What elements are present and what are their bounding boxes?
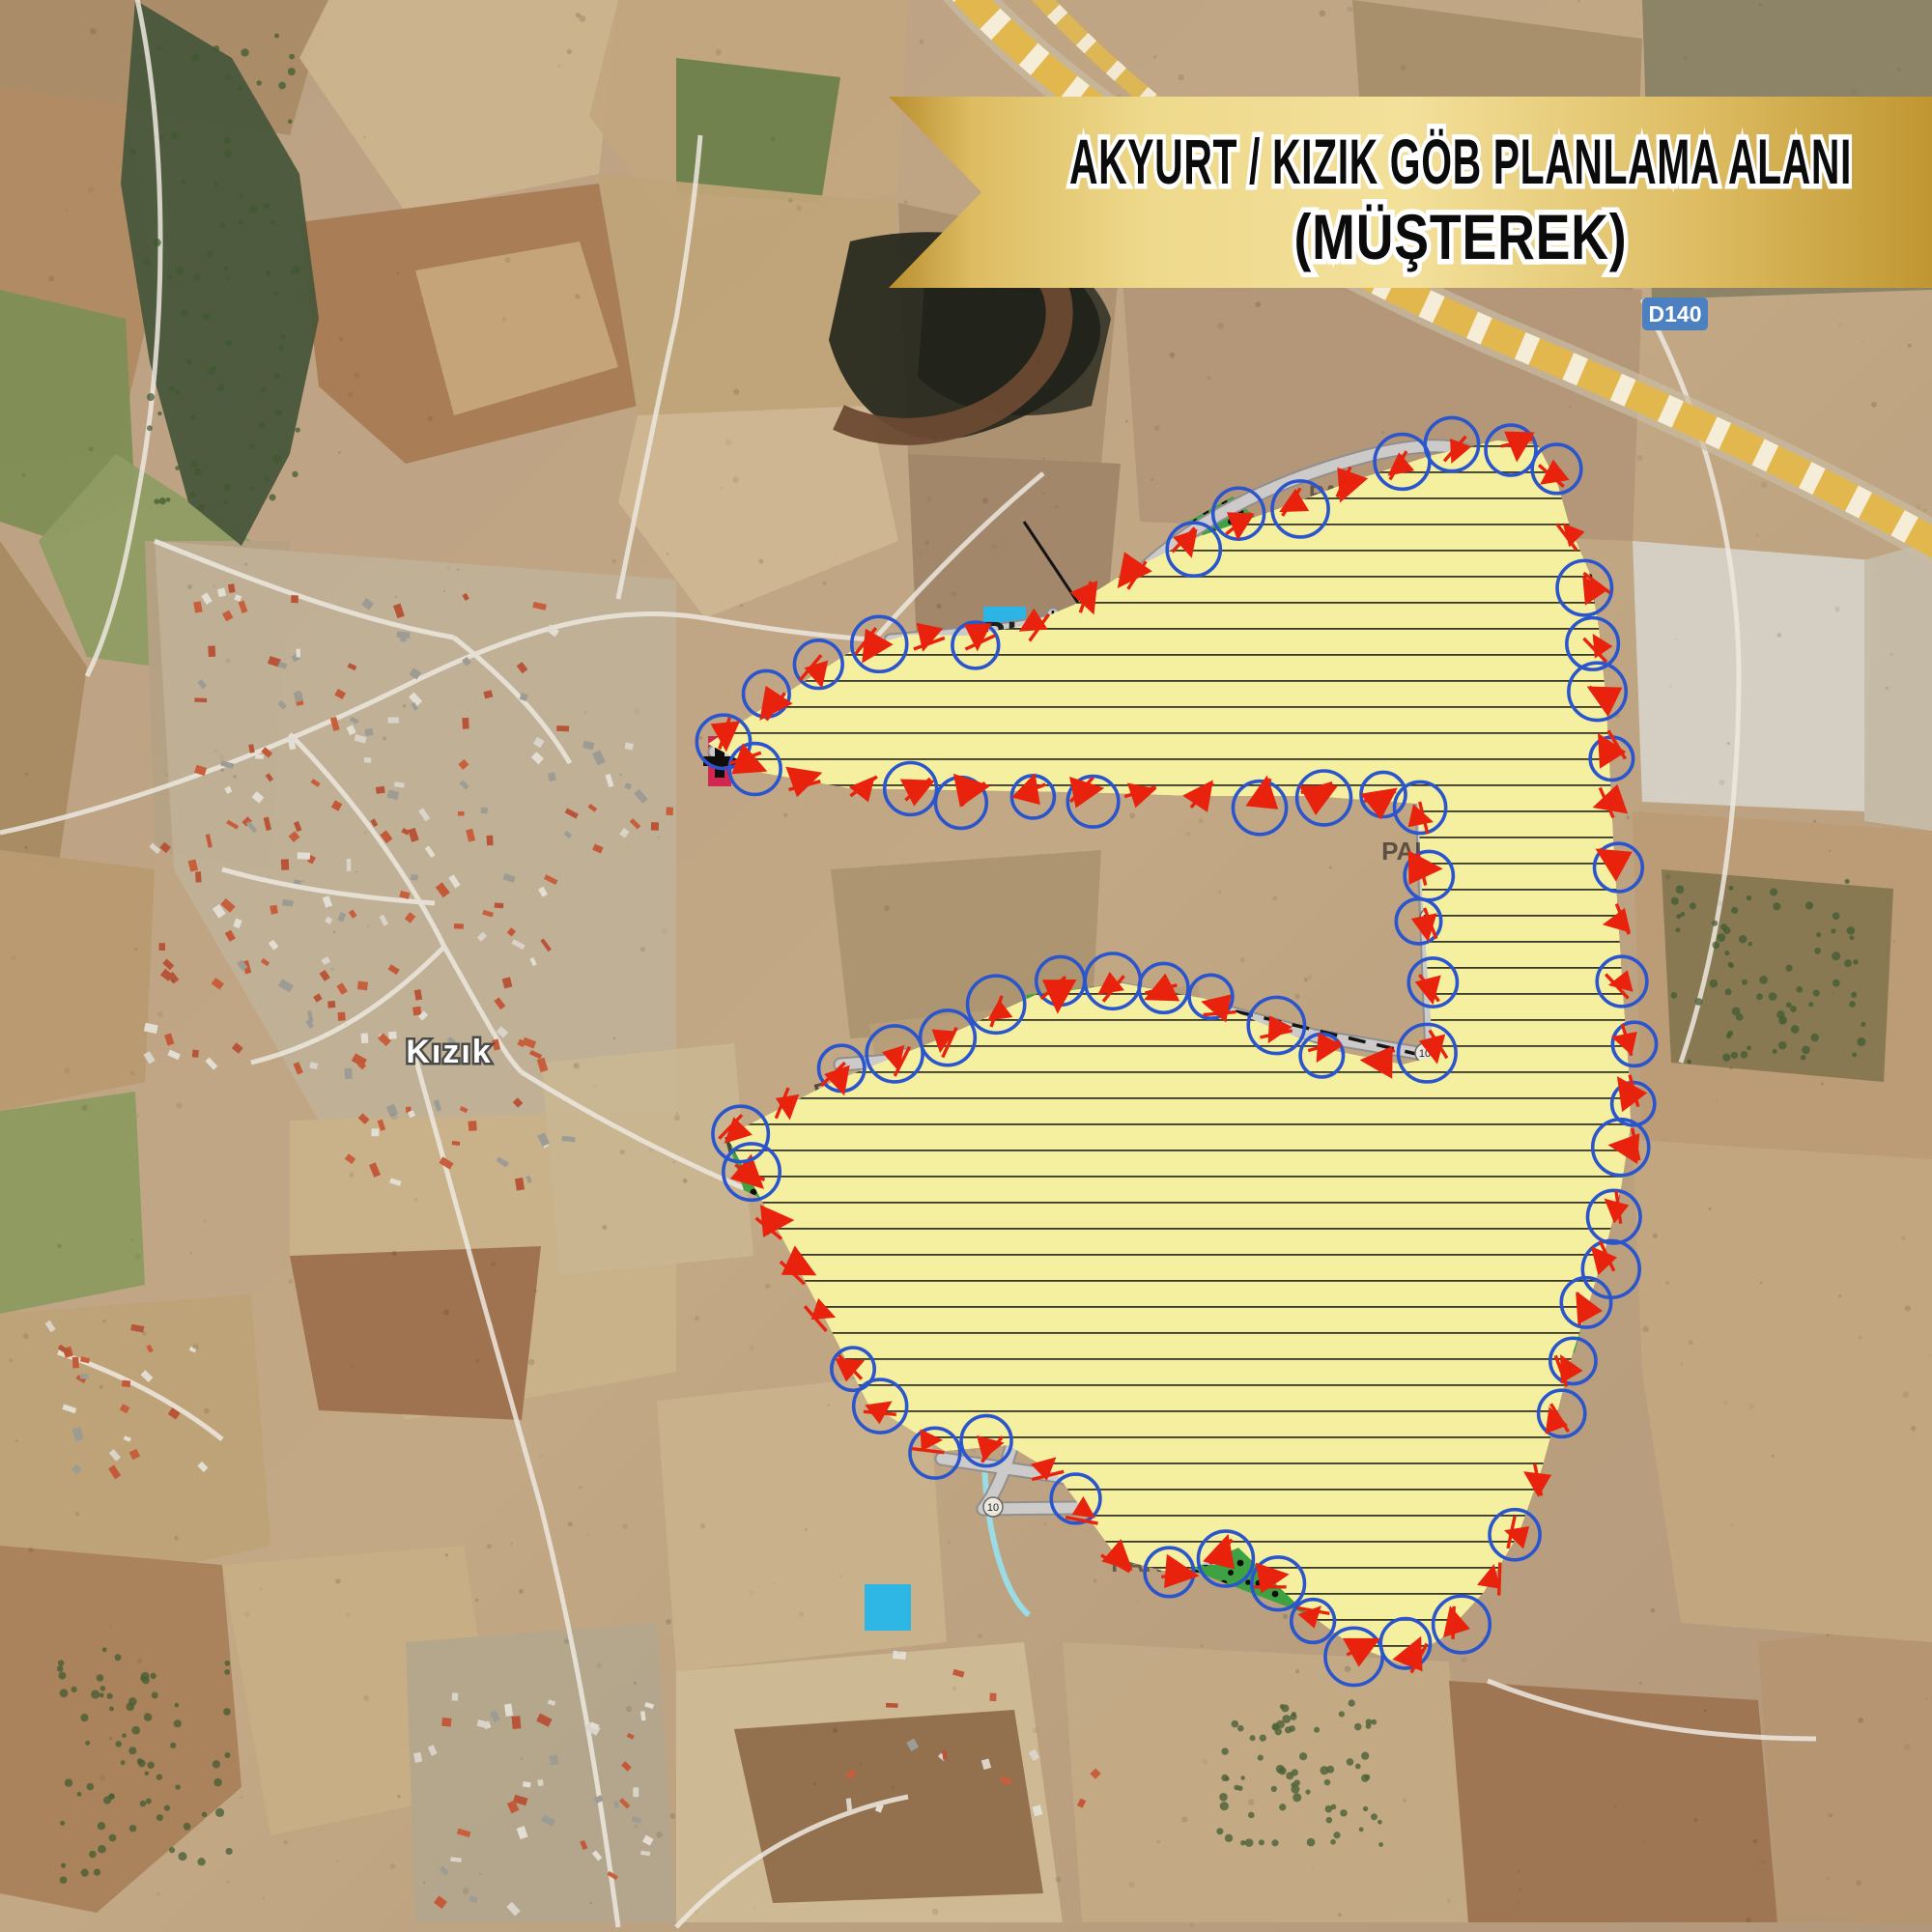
- building: [371, 1128, 379, 1136]
- building: [462, 718, 469, 729]
- building: [411, 874, 418, 880]
- building: [122, 1380, 130, 1387]
- terrain-patch: [290, 1246, 541, 1420]
- village-label-group: Kızık: [406, 1034, 492, 1070]
- building: [651, 822, 659, 831]
- building: [281, 859, 289, 869]
- road-badge-label: D140: [1649, 301, 1702, 327]
- building: [441, 1718, 451, 1727]
- building: [365, 728, 374, 736]
- building: [487, 836, 494, 846]
- building: [192, 1050, 199, 1058]
- building: [495, 903, 504, 909]
- building: [361, 1034, 369, 1043]
- terrain-patch: [734, 1710, 1043, 1903]
- building: [480, 807, 488, 814]
- building: [537, 1779, 543, 1786]
- zone-facility: [865, 1584, 911, 1631]
- terrain-patch: [1063, 1642, 1468, 1922]
- building: [80, 1374, 89, 1379]
- building: [376, 786, 385, 794]
- road-badge: D140: [1642, 298, 1708, 330]
- building: [347, 859, 352, 871]
- svg-text:10: 10: [987, 1502, 999, 1514]
- building: [452, 1692, 459, 1700]
- terrain-patch: [1758, 1623, 1932, 1922]
- boundary-tick-icon: [1499, 1563, 1500, 1596]
- terrain-patch: [1633, 541, 1874, 811]
- building: [297, 649, 300, 658]
- building: [327, 1001, 335, 1009]
- building: [195, 871, 201, 882]
- building: [412, 1007, 421, 1016]
- building: [388, 717, 399, 723]
- building: [989, 1693, 996, 1701]
- building: [452, 1141, 461, 1146]
- building: [454, 923, 464, 929]
- terrain-patch: [0, 1092, 145, 1314]
- building: [159, 943, 165, 951]
- building: [357, 981, 368, 991]
- building: [614, 1801, 619, 1808]
- building: [886, 1703, 898, 1708]
- building: [556, 725, 569, 731]
- building: [338, 1012, 346, 1021]
- terrain-patch: [0, 1294, 270, 1594]
- building: [194, 697, 207, 702]
- building: [458, 811, 464, 815]
- building: [208, 645, 215, 657]
- building: [255, 754, 264, 759]
- building: [397, 631, 411, 639]
- building: [364, 757, 372, 763]
- terrain-patch: [406, 1623, 676, 1922]
- building: [469, 1121, 477, 1131]
- terrain-patch: [1662, 869, 1893, 1082]
- building: [282, 899, 294, 907]
- map-canvas[interactable]: ÖAÖAÖAÖAÖAÖAÖA 1010101010101010101010101…: [0, 0, 1932, 1932]
- road-width-badge: 10: [983, 1497, 1003, 1517]
- building: [666, 807, 673, 815]
- title-banner: AKYURT / KIZIK GÖB PLANLAMA ALANI (MÜŞTE…: [889, 97, 1932, 288]
- banner-title-line1: AKYURT / KIZIK GÖB PLANLAMA ALANI: [1069, 126, 1852, 197]
- building: [512, 1716, 522, 1729]
- terrain-patch: [676, 58, 840, 203]
- banner-title-line2: (MÜŞTEREK): [1294, 201, 1628, 272]
- terrain-patch: [541, 1043, 753, 1275]
- village-label: Kızık: [406, 1034, 492, 1070]
- building: [72, 1357, 79, 1369]
- building: [388, 1032, 397, 1039]
- building: [291, 595, 298, 603]
- terrain-patch: [1633, 1140, 1932, 1642]
- building: [298, 852, 311, 860]
- boundary-tick-icon: [1453, 1606, 1454, 1639]
- boundary-tick-icon: [1161, 1575, 1194, 1577]
- building: [344, 1068, 352, 1079]
- terrain-patch: [1864, 541, 1932, 831]
- boundary-tick-icon: [1577, 1293, 1579, 1325]
- building: [942, 1750, 947, 1760]
- building: [633, 1787, 639, 1797]
